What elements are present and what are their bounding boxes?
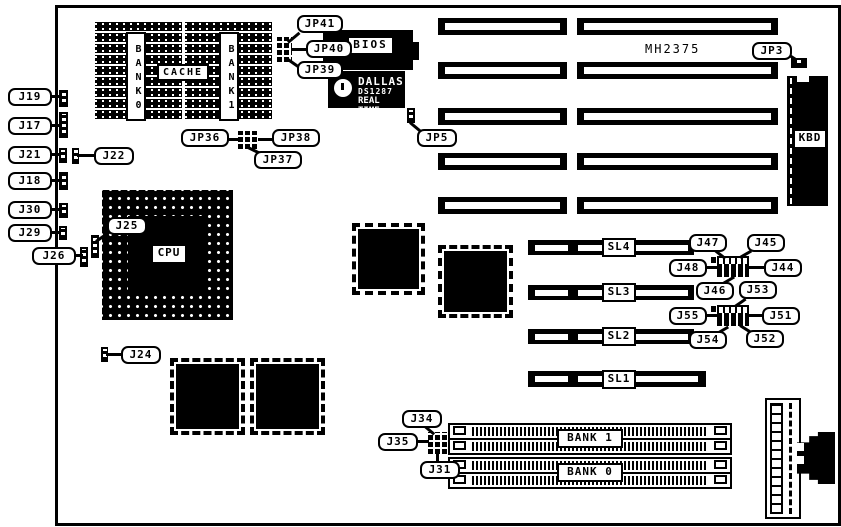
- callout-j44: J44: [764, 259, 802, 277]
- alarm-clock-icon: [334, 79, 352, 97]
- isa-slot-2-short: [438, 62, 567, 79]
- callout-jp39: JP39: [297, 61, 343, 79]
- isa-slot-4-short: [438, 153, 567, 170]
- board-ref-text: MH2375: [645, 42, 700, 56]
- callout-j47: J47: [689, 234, 727, 252]
- callout-jp41: JP41: [297, 15, 343, 33]
- qfp-chip-3: [176, 364, 239, 429]
- din-notch-1: [797, 443, 804, 451]
- callout-jp37: JP37: [254, 151, 302, 169]
- j22-leader: [77, 154, 95, 157]
- rtc-model: DS1287: [358, 87, 393, 96]
- isa-slot-3-short: [438, 108, 567, 125]
- callout-j29: J29: [8, 224, 52, 242]
- callout-jp40: JP40: [306, 40, 352, 58]
- callout-j18: J18: [8, 172, 52, 190]
- callout-j21: J21: [8, 146, 52, 164]
- bios-label: BIOS: [347, 36, 394, 55]
- cache-label: CACHE: [157, 64, 209, 81]
- callout-j46: J46: [696, 282, 734, 300]
- callout-j34: J34: [402, 410, 442, 428]
- callout-j45: J45: [747, 234, 785, 252]
- j44-leader: [747, 266, 765, 269]
- callout-jp38: JP38: [272, 129, 320, 147]
- callout-j54: J54: [689, 331, 727, 349]
- j31-j34-j35-jumper-block: [428, 432, 447, 454]
- callout-j31: J31: [420, 461, 460, 479]
- j51-leader: [747, 314, 763, 317]
- isa-slot-5-short: [438, 197, 567, 214]
- callout-j25: J25: [107, 217, 147, 235]
- j19-connector: [59, 90, 68, 107]
- callout-j19: J19: [8, 88, 52, 106]
- isa-slot-2-long: [577, 62, 778, 79]
- rtc-type: REAL TIME: [358, 96, 405, 116]
- callout-j48: J48: [669, 259, 707, 277]
- callout-j51: J51: [762, 307, 800, 325]
- callout-j35: J35: [378, 433, 418, 451]
- isa-slot-3-long: [577, 108, 778, 125]
- cache-bank0-label: BANK0: [126, 32, 146, 121]
- callout-j30: J30: [8, 201, 52, 219]
- isa-slot-1-short: [438, 18, 567, 35]
- sl2-label: SL2: [602, 327, 636, 346]
- callout-j22: J22: [94, 147, 134, 165]
- cache-bank1-label: BANK1: [219, 32, 239, 121]
- callout-j52: J52: [746, 330, 784, 348]
- motherboard-diagram: BANK0 BANK1 CACHE MH2375 BIOS DALLAS DS1…: [0, 0, 841, 527]
- callout-j17: J17: [8, 117, 52, 135]
- din-notch-2: [797, 456, 804, 464]
- j26-connector: [80, 247, 88, 267]
- sl4-label: SL4: [602, 238, 636, 257]
- callout-j26: J26: [32, 247, 76, 265]
- callout-jp3: JP3: [752, 42, 792, 60]
- qfp-chip-4: [256, 364, 319, 429]
- isa-slot-4-long: [577, 153, 778, 170]
- callout-j55: J55: [669, 307, 707, 325]
- sl1-label: SL1: [602, 370, 636, 389]
- qfp-chip-2: [444, 251, 507, 312]
- callout-j24: J24: [121, 346, 161, 364]
- sl3-label: SL3: [602, 283, 636, 302]
- callout-j53: J53: [739, 281, 777, 299]
- memory-bank0-label: BANK 0: [557, 463, 623, 482]
- kbd-label: KBD: [793, 129, 827, 149]
- power-connector: [765, 398, 801, 519]
- callout-jp5: JP5: [417, 129, 457, 147]
- qfp-chip-1: [358, 229, 419, 289]
- cpu-label: CPU: [151, 244, 187, 264]
- callout-jp36: JP36: [181, 129, 229, 147]
- memory-bank1-label: BANK 1: [557, 429, 623, 448]
- isa-slot-1-long: [577, 18, 778, 35]
- isa-slot-5-long: [577, 197, 778, 214]
- bios-chip-tab: [413, 42, 419, 60]
